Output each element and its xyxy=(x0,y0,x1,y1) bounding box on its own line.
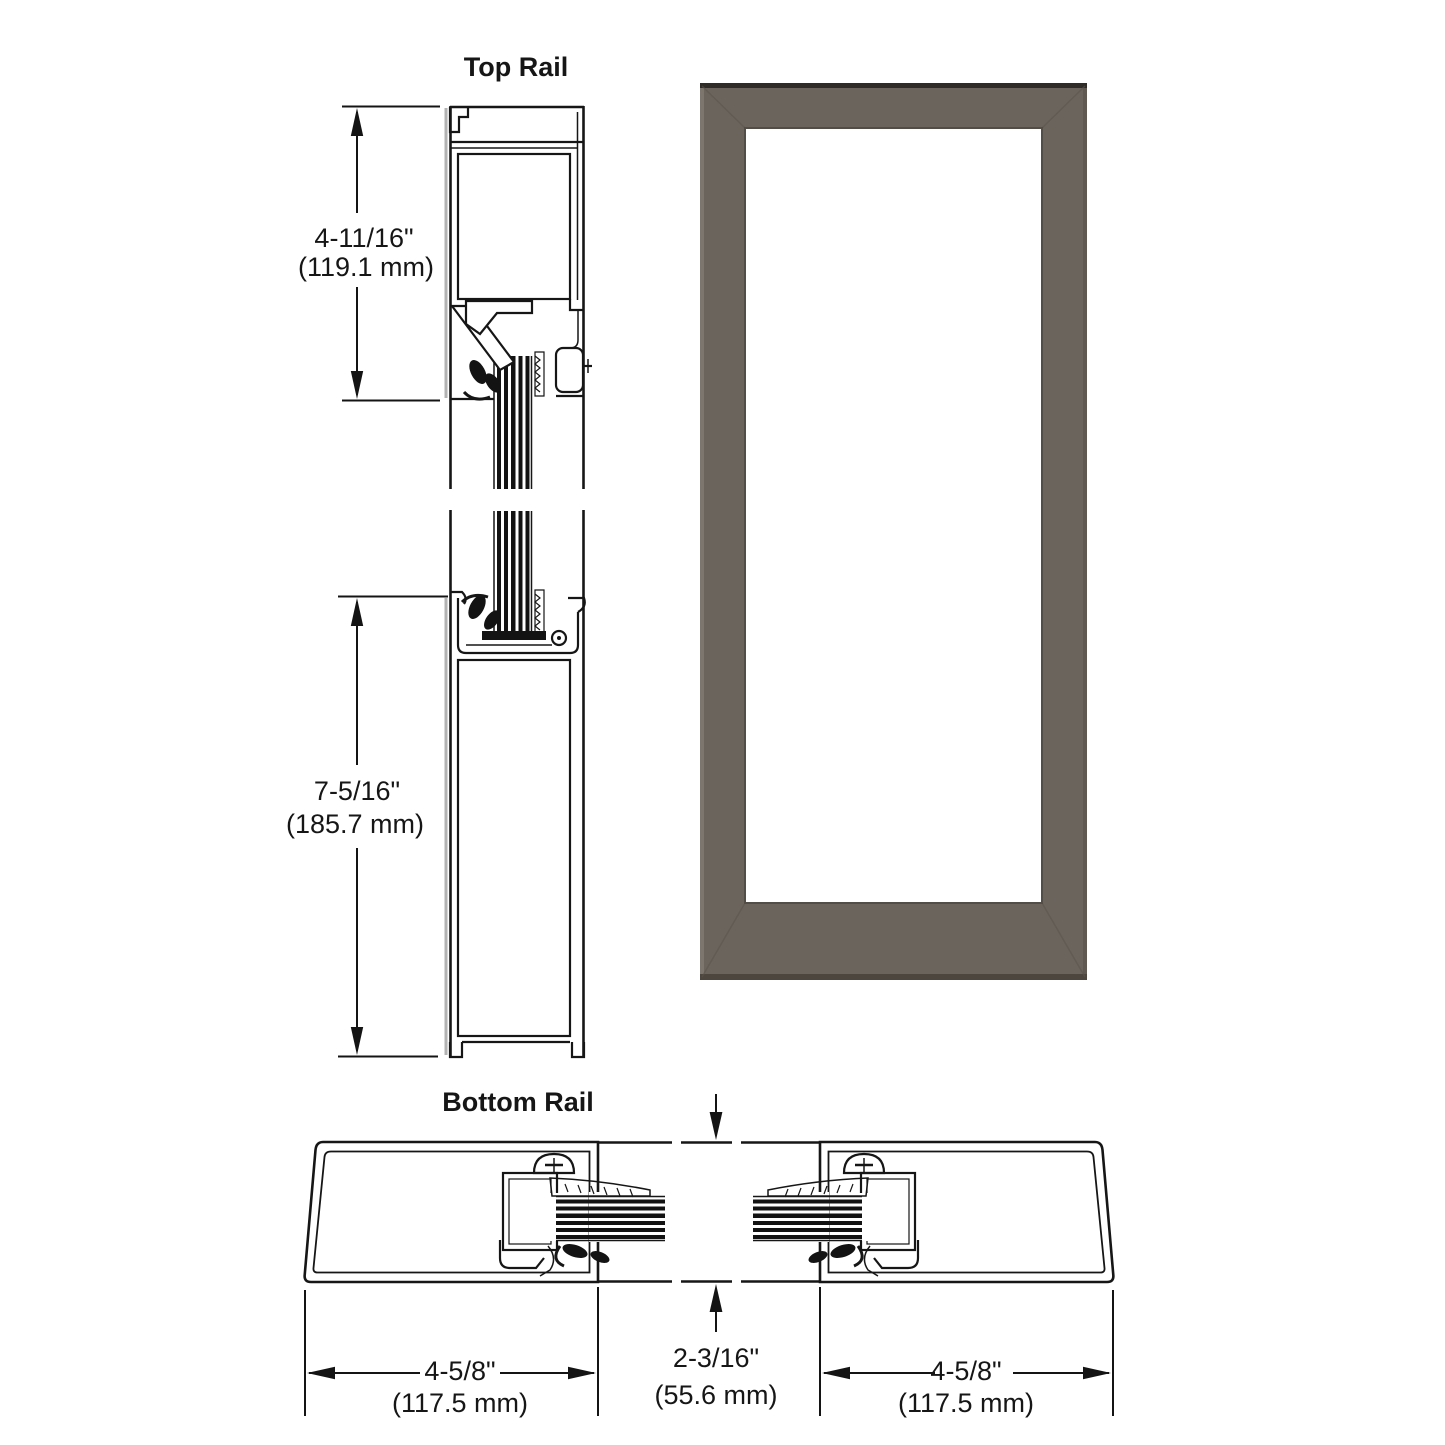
door-left-highlight xyxy=(700,88,704,976)
bottom-rail-dim-inches: 7-5/16" xyxy=(314,776,400,806)
door-thickness-dim-mm: (55.6 mm) xyxy=(654,1380,777,1410)
right-stile-dim-inches: 4-5/8" xyxy=(930,1356,1001,1386)
top-rail-section-drawing xyxy=(446,106,592,489)
glass-stack-plan xyxy=(556,1197,665,1241)
top-hook-profile xyxy=(450,107,468,132)
section-break-lines xyxy=(598,1143,820,1282)
door-bottom-edge xyxy=(700,974,1087,980)
right-stile-section xyxy=(753,1142,1113,1282)
bottom-rail-label: Bottom Rail xyxy=(442,1087,594,1117)
left-stile-section xyxy=(305,1142,665,1282)
bottom-rail-dim-mm: (185.7 mm) xyxy=(286,809,424,839)
dimension-bottom-rail: 7-5/16" (185.7 mm) xyxy=(286,597,448,1057)
glass-stop xyxy=(556,348,583,392)
gasket xyxy=(561,1241,589,1260)
plan-section xyxy=(305,1142,1114,1282)
door-elevation xyxy=(700,83,1087,980)
gasket xyxy=(589,1249,611,1266)
top-rail-label: Top Rail xyxy=(464,52,569,82)
top-rail-dim-mm: (119.1 mm) xyxy=(298,252,434,282)
left-stile-dim-mm: (117.5 mm) xyxy=(392,1388,528,1418)
hollow-chamber-top xyxy=(458,154,570,299)
hollow-chamber-bottom xyxy=(458,660,570,1036)
glass-stack-bottom xyxy=(494,511,532,639)
bottom-rail-section-drawing xyxy=(446,510,585,1057)
door-glass xyxy=(745,128,1042,903)
door-top-edge xyxy=(700,83,1087,88)
top-rail-dim-inches: 4-11/16" xyxy=(314,223,413,253)
door-right-shade xyxy=(1083,88,1087,976)
setting-block xyxy=(482,631,546,640)
right-stile-dim-mm: (117.5 mm) xyxy=(898,1388,1034,1418)
technical-drawing-page: 4-11/16" (119.1 mm) 7-5/16" (185.7 mm) 4… xyxy=(0,0,1445,1445)
glazing-pocket-bottom xyxy=(450,590,585,653)
dimension-top-rail: 4-11/16" (119.1 mm) xyxy=(298,107,440,401)
door-thickness-dim-inches: 2-3/16" xyxy=(673,1343,759,1373)
left-stile-dim-inches: 4-5/8" xyxy=(424,1356,495,1386)
door-spec-diagram: 4-11/16" (119.1 mm) 7-5/16" (185.7 mm) 4… xyxy=(0,0,1445,1445)
glass-stack-top xyxy=(494,356,532,489)
glazing-clip xyxy=(466,301,532,334)
